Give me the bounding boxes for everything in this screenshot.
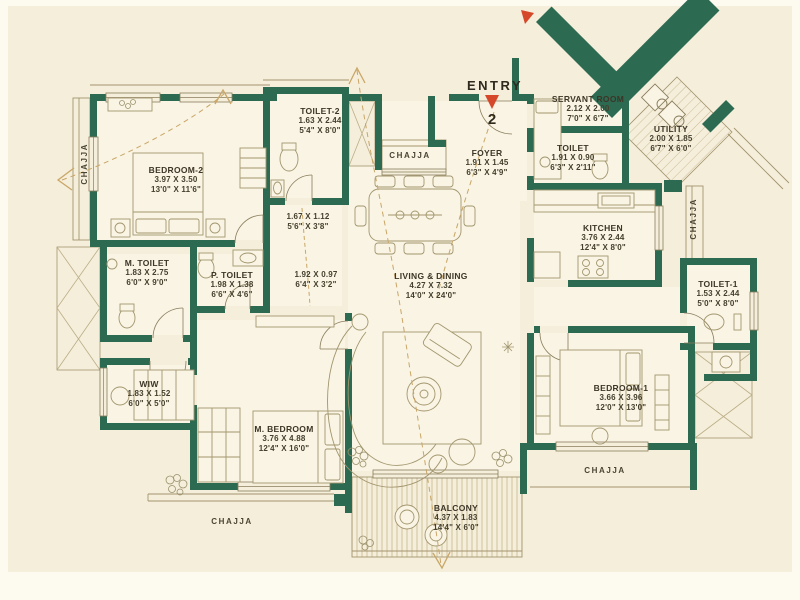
passage-2-dims: 1.92 X 0.97 6'4" X 3'2" bbox=[294, 270, 337, 289]
room-label-toilet: TOILET 1.91 X 0.90 6'3" X 2'11" bbox=[550, 143, 595, 172]
room-label-wiw: WIW 1.83 X 1.52 6'0" X 5'0" bbox=[127, 379, 170, 408]
room-label-toilet-2: TOILET-2 1.63 X 2.44 5'4" X 8'0" bbox=[298, 106, 341, 135]
chajja-label-top: CHAJJA bbox=[389, 151, 431, 161]
floor-plan: ENTRY 2 BEDROOM-2 3.97 X 3.50 13'0" X 11… bbox=[0, 0, 800, 600]
chajja-label-left: CHAJJA bbox=[80, 143, 90, 185]
entry-label: ENTRY bbox=[467, 78, 523, 94]
chajja-label-bottom-left: CHAJJA bbox=[211, 517, 253, 527]
room-label-kitchen: KITCHEN 3.76 X 2.44 12'4" X 8'0" bbox=[580, 223, 626, 252]
room-label-toilet-1: TOILET-1 1.53 X 2.44 5'0" X 8'0" bbox=[696, 279, 739, 308]
room-label-utility: UTILITY 2.00 X 1.85 6'7" X 6'0" bbox=[649, 124, 692, 153]
chajja-label-right: CHAJJA bbox=[689, 198, 699, 240]
passage-1-dims: 1.67 X 1.12 5'6" X 3'8" bbox=[286, 212, 329, 231]
room-label-balcony: BALCONY 4.37 X 1.83 14'4" X 6'0" bbox=[433, 503, 479, 532]
chajja-label-bottom-right: CHAJJA bbox=[584, 466, 626, 476]
room-label-m-bedroom: M. BEDROOM 3.76 X 4.88 12'4" X 16'0" bbox=[254, 424, 313, 453]
room-label-m-toilet: M. TOILET 1.83 X 2.75 6'0" X 9'0" bbox=[125, 258, 170, 287]
room-label-p-toilet: P. TOILET 1.98 X 1.38 6'6" X 4'6" bbox=[210, 270, 253, 299]
room-label-bedroom-1: BEDROOM-1 3.66 X 3.96 12'0" X 13'0" bbox=[594, 383, 649, 412]
room-label-servant-room: SERVANT ROOM 2.12 X 2.00 7'0" X 6'7" bbox=[552, 94, 624, 123]
room-label-living-dining: LIVING & DINING 4.27 X 7.32 14'0" X 24'0… bbox=[394, 271, 467, 300]
room-label-foyer: FOYER 1.91 X 1.45 6'3" X 4'9" bbox=[465, 148, 508, 177]
entry-number: 2 bbox=[488, 111, 496, 129]
room-label-bedroom-2: BEDROOM-2 3.97 X 3.50 13'0" X 11'6" bbox=[149, 165, 204, 194]
